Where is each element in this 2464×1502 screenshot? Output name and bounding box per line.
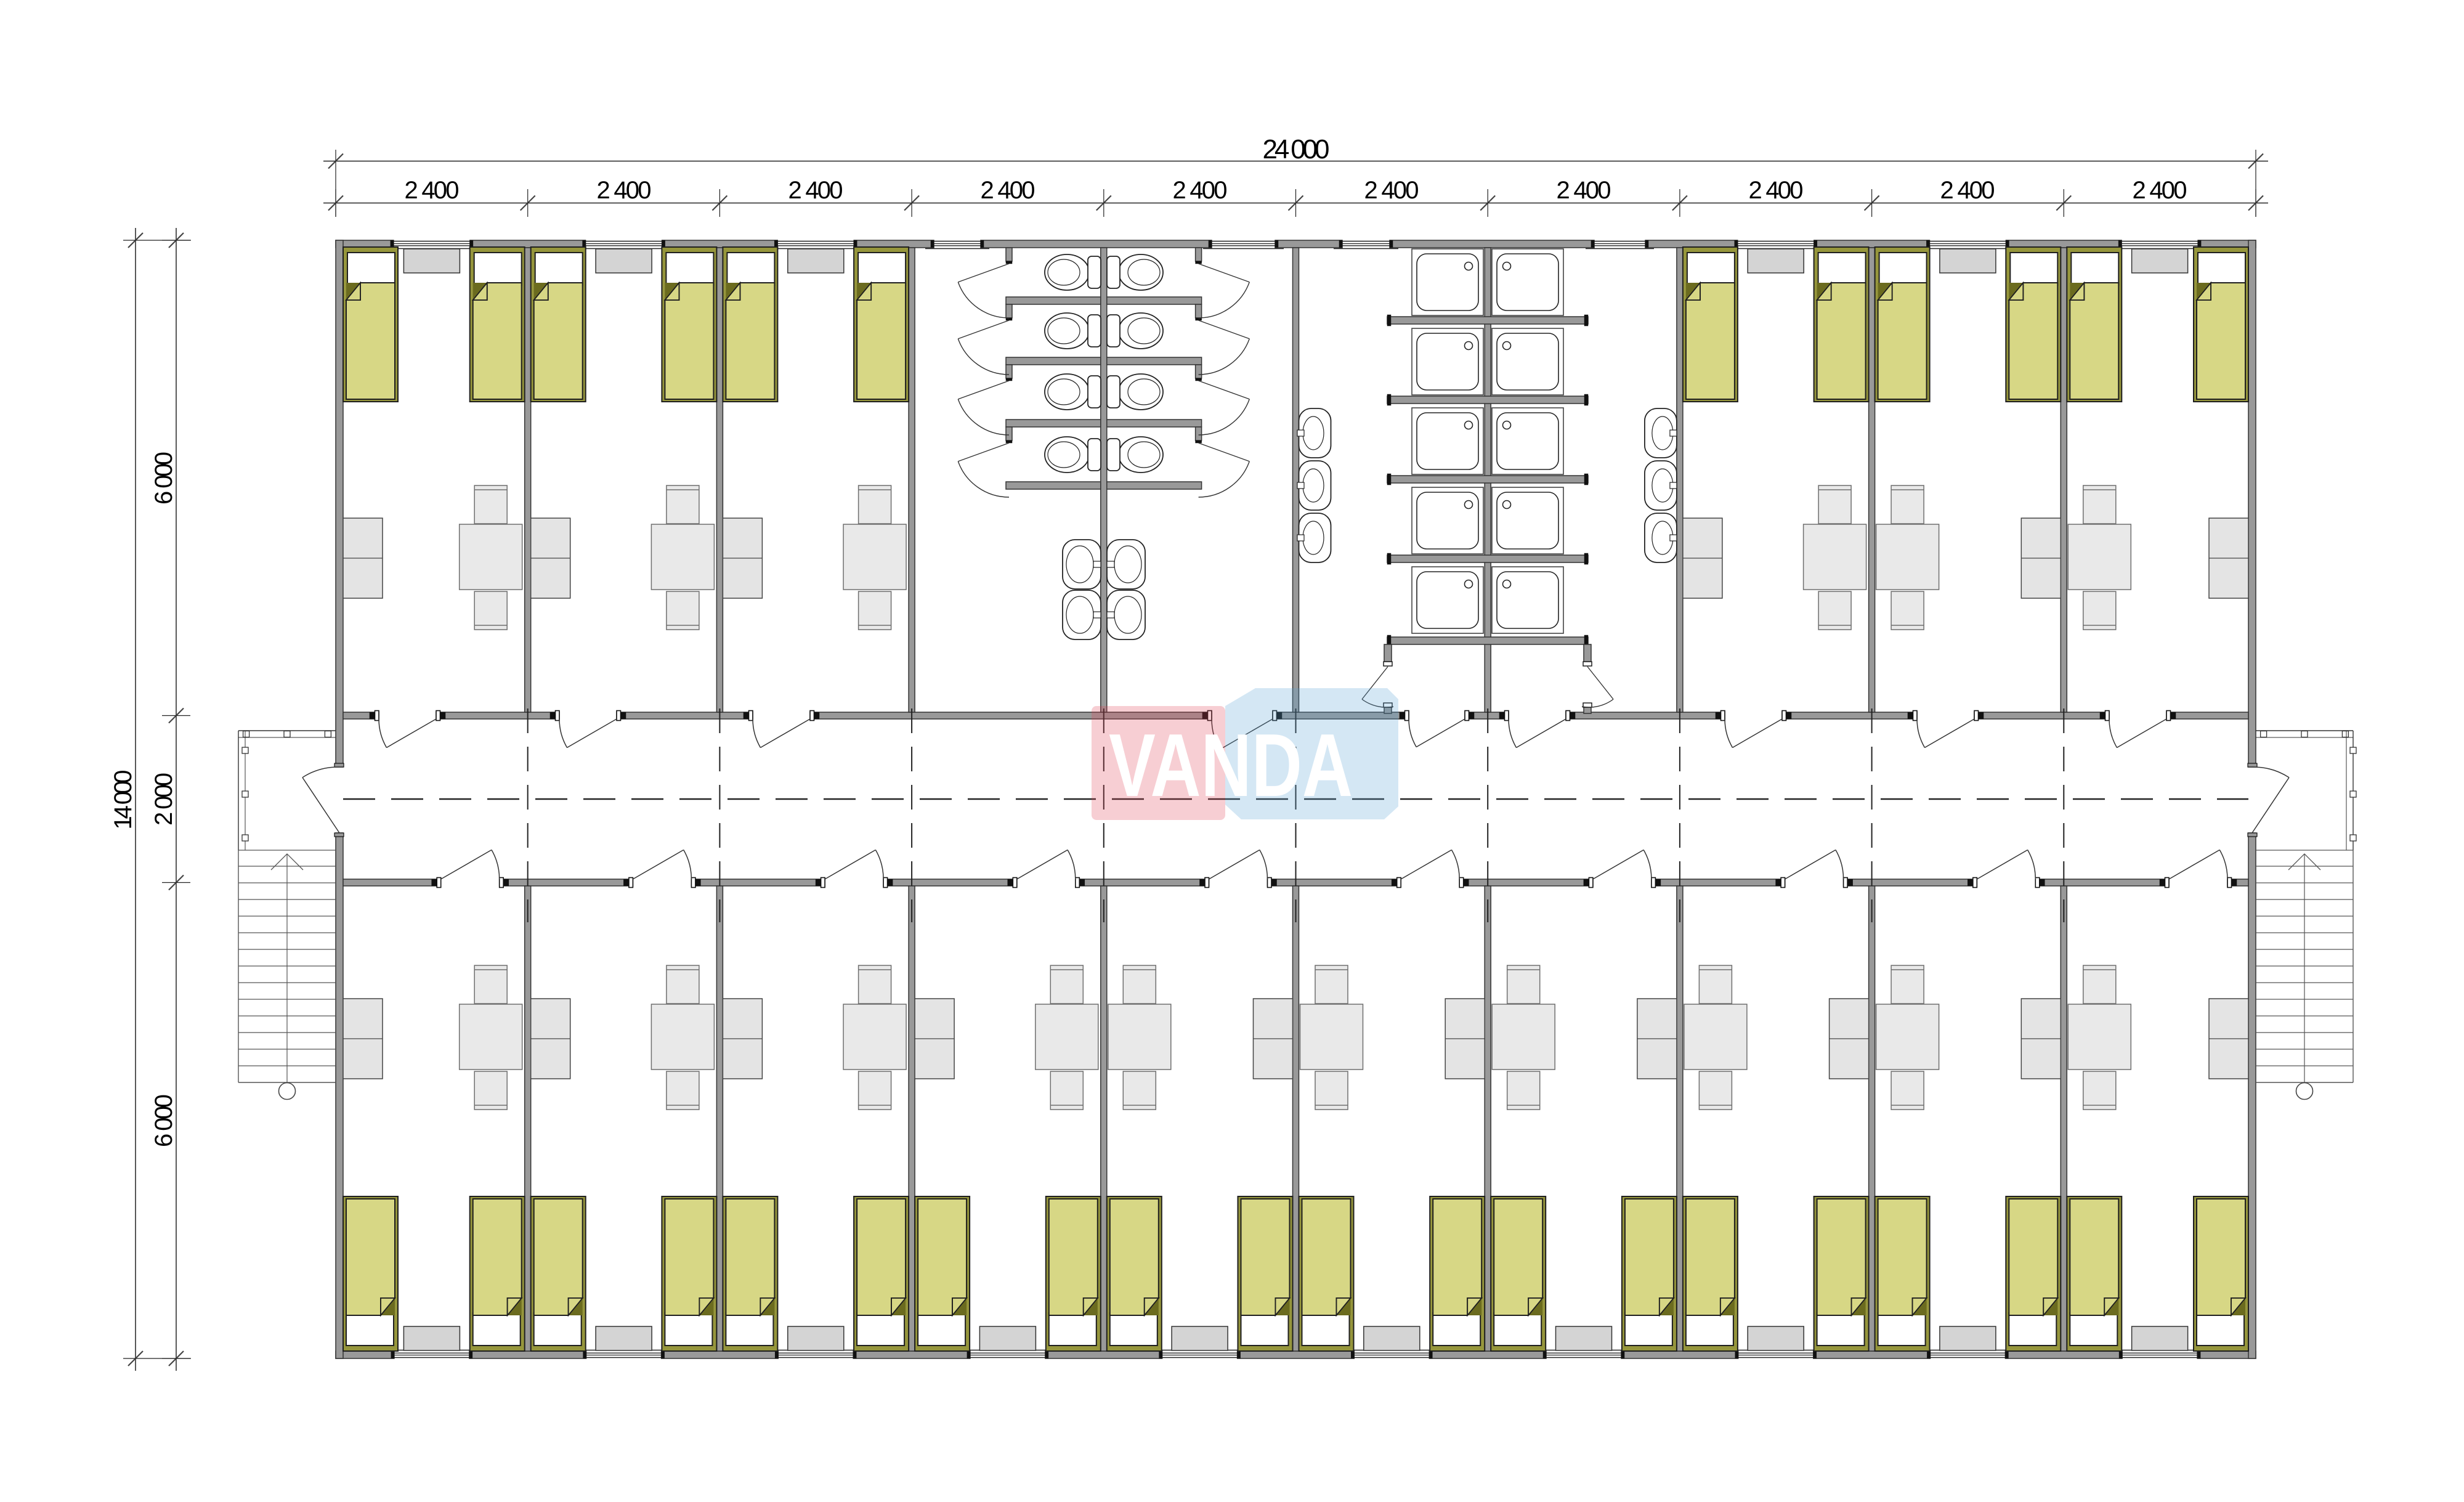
svg-text:6 000: 6 000	[150, 1094, 177, 1147]
svg-text:24 000: 24 000	[1263, 134, 1330, 164]
svg-text:2 400: 2 400	[788, 177, 843, 204]
svg-text:2 400: 2 400	[2133, 177, 2187, 204]
svg-text:2 400: 2 400	[1557, 177, 1611, 204]
svg-text:VANDA: VANDA	[1109, 715, 1353, 815]
svg-text:2 400: 2 400	[405, 177, 460, 204]
svg-text:2 400: 2 400	[1940, 177, 1995, 204]
svg-text:2 400: 2 400	[1173, 177, 1228, 204]
svg-text:14 000: 14 000	[110, 770, 137, 830]
svg-text:6 000: 6 000	[150, 452, 177, 505]
svg-text:2 400: 2 400	[1749, 177, 1804, 204]
svg-text:2 400: 2 400	[1364, 177, 1419, 204]
svg-text:2 400: 2 400	[981, 177, 1035, 204]
svg-text:2 400: 2 400	[597, 177, 652, 204]
svg-text:2 000: 2 000	[150, 773, 177, 826]
